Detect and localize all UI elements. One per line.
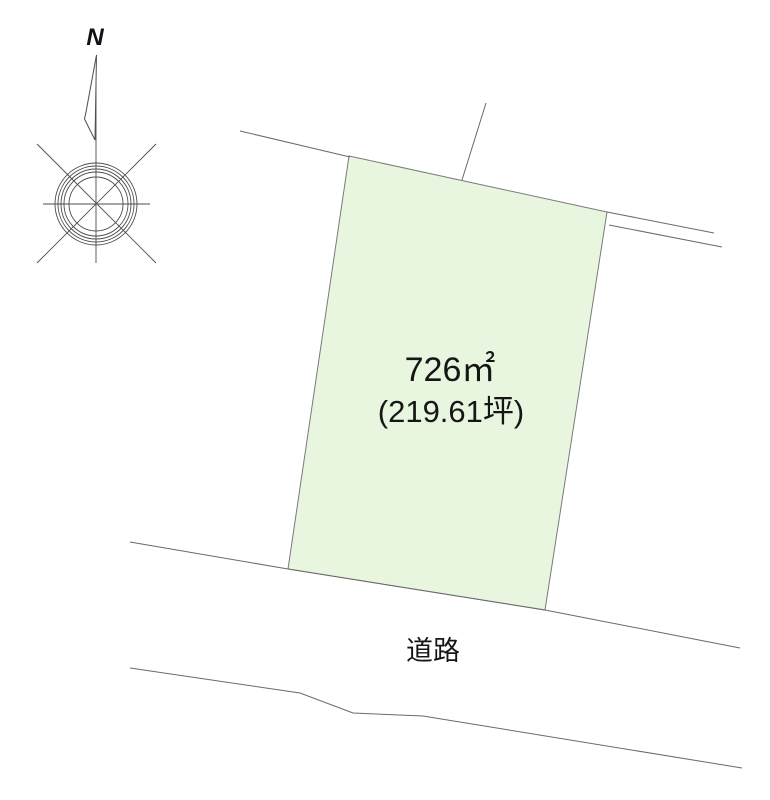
- plot-diagram-svg: N: [0, 0, 770, 800]
- north-arrow-pennant-icon: [85, 55, 97, 140]
- parcel-area-tsubo-label: (219.61坪): [378, 394, 524, 429]
- top-boundary-extension-line: [240, 131, 350, 157]
- plot-diagram-canvas: N: [0, 0, 770, 800]
- parcel-area-m2-label: 726㎡: [405, 351, 496, 389]
- road-lower-edge-line: [130, 668, 742, 768]
- top-branch-boundary-line: [462, 103, 486, 180]
- compass-rose: N: [37, 24, 156, 263]
- compass-north-label: N: [86, 24, 104, 51]
- road-label: 道路: [406, 636, 460, 666]
- right-boundary-line-lower: [609, 225, 722, 247]
- right-boundary-line-upper: [607, 212, 714, 233]
